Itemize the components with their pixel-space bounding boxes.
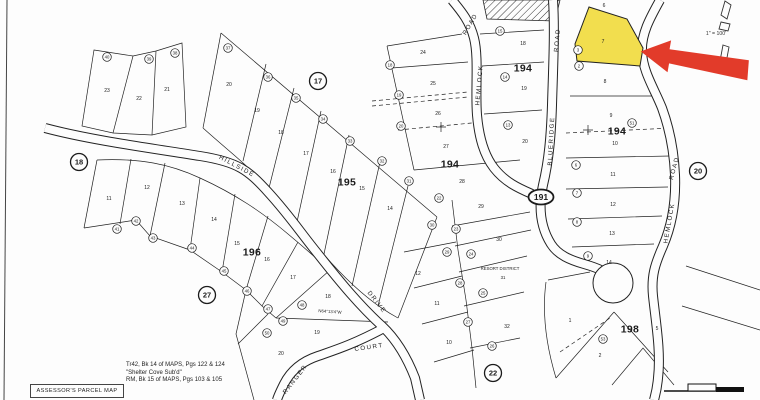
- resort-district-lot: 31: [501, 275, 506, 280]
- svg-text:34: 34: [321, 117, 326, 122]
- svg-text:35: 35: [294, 96, 299, 101]
- lot-number: 29: [478, 204, 484, 210]
- lot-number: 16: [264, 257, 270, 263]
- lot-number: 14: [387, 206, 393, 212]
- lot-number: 6: [603, 3, 606, 9]
- parcel-circle-number: 50: [263, 329, 272, 338]
- parcel-circle-number: 38: [171, 49, 180, 58]
- lot-number: 18: [520, 41, 526, 47]
- lot-number: 11: [106, 196, 111, 202]
- adjacent-page-circle: 17: [310, 73, 327, 90]
- parcel-circle-number: 53: [599, 335, 608, 344]
- lot-number: 20: [522, 139, 528, 145]
- svg-text:32: 32: [380, 159, 385, 164]
- parcel-circle-number: 36: [264, 73, 273, 82]
- svg-text:26: 26: [490, 344, 495, 349]
- note-line: RM, Bk 15 of MAPS, Pgs 103 & 105: [126, 377, 225, 385]
- parcel-circle-number: 18: [386, 61, 395, 70]
- block-number: 194: [441, 159, 459, 171]
- svg-text:33: 33: [348, 139, 353, 144]
- svg-text:18: 18: [388, 63, 393, 68]
- pointer-arrow-icon: [638, 36, 752, 87]
- parcel-circle-number: 40: [103, 53, 112, 62]
- lot-number: 20: [226, 82, 232, 88]
- parcel-circle-number: 29: [443, 248, 452, 257]
- lot-number: 20: [278, 351, 284, 357]
- lot-number: 12: [610, 202, 616, 208]
- parcel-circle-number: 51: [628, 119, 637, 128]
- parcel-circle-number: 39: [145, 55, 154, 64]
- lot-number: 15: [359, 186, 365, 192]
- highlighted-parcel: [575, 7, 643, 66]
- road-label: ROAD: [553, 28, 562, 52]
- lot-number: 10: [612, 141, 618, 147]
- parcel-circle-number: 37: [224, 44, 233, 53]
- lot-number: 27: [443, 144, 449, 150]
- svg-text:29: 29: [445, 250, 450, 255]
- block-number: 194: [608, 126, 626, 138]
- parcel-circle-number: 41: [113, 225, 122, 234]
- lot-number: 17: [290, 275, 296, 281]
- highway-shield-191: 191: [529, 190, 554, 205]
- lot-number: 19: [521, 86, 527, 92]
- lot-number: 5: [656, 326, 659, 332]
- parcel-circle-number: 48: [298, 301, 307, 310]
- svg-text:43: 43: [151, 236, 156, 241]
- lot-number: 18: [325, 294, 331, 300]
- parcel-circle-number: 25: [479, 289, 488, 298]
- svg-text:36: 36: [266, 75, 271, 80]
- lot-number: 23: [104, 88, 110, 94]
- lot-number: 9: [610, 113, 613, 119]
- svg-text:19: 19: [397, 93, 402, 98]
- parcel-circle-number: 28: [456, 279, 465, 288]
- lot-number: 13: [179, 201, 185, 207]
- svg-text:24: 24: [469, 252, 474, 257]
- svg-text:17: 17: [314, 77, 322, 86]
- svg-text:31: 31: [407, 179, 412, 184]
- parcel-circle-number: 3: [574, 46, 583, 55]
- map-canvas: 2322212019181716151411121314151617181920…: [0, 0, 760, 400]
- adjacent-page-circle: 20: [690, 163, 707, 180]
- scale-bar: [664, 384, 744, 392]
- svg-text:53: 53: [601, 337, 606, 342]
- scale-label: 1" = 100': [692, 31, 740, 37]
- adjacent-page-circle: 18: [71, 154, 88, 171]
- lot-number: 11: [434, 301, 439, 307]
- lot-number: 8: [604, 79, 607, 85]
- svg-text:20: 20: [694, 167, 702, 176]
- block-number: 198: [621, 324, 639, 336]
- block-number: 196: [243, 247, 261, 259]
- assessor-parcel-map: 2322212019181716151411121314151617181920…: [0, 0, 760, 400]
- svg-text:44: 44: [190, 246, 195, 251]
- svg-text:22: 22: [489, 369, 497, 378]
- lot-number: 21: [164, 87, 170, 93]
- svg-text:38: 38: [173, 51, 178, 56]
- lot-number: 24: [420, 50, 426, 56]
- lot-number: 12: [415, 271, 421, 277]
- lot-number: 28: [459, 179, 465, 185]
- svg-text:51: 51: [630, 121, 635, 126]
- note-line: Tr42, Bk 14 of MAPS, Pgs 122 & 124: [126, 362, 225, 370]
- block-number: 194: [514, 63, 532, 75]
- block-number: 195: [338, 177, 356, 189]
- svg-text:42: 42: [134, 219, 139, 224]
- svg-text:14: 14: [503, 75, 508, 80]
- svg-text:46: 46: [245, 289, 250, 294]
- road-label: BLUERIDGE: [547, 116, 557, 166]
- parcel-circle-number: 15: [496, 27, 505, 36]
- svg-text:23: 23: [454, 227, 459, 232]
- svg-text:28: 28: [458, 281, 463, 286]
- parcel-circle-number: 6: [572, 161, 581, 170]
- lot-number: 19: [314, 330, 320, 336]
- svg-text:27: 27: [203, 291, 211, 300]
- parcel-circle-number: 47: [264, 305, 273, 314]
- lot-number: 22: [136, 96, 142, 102]
- lot-number: 26: [435, 111, 441, 117]
- lot-number: 17: [303, 151, 309, 157]
- svg-text:27: 27: [466, 320, 471, 325]
- svg-text:15: 15: [498, 29, 503, 34]
- lot-number: 32: [504, 324, 510, 330]
- lot-number: 19: [254, 108, 260, 114]
- svg-text:50: 50: [265, 331, 270, 336]
- parcel-circle-number: 14: [501, 73, 510, 82]
- lot-number: 11: [610, 172, 615, 178]
- parcel-circle-number: 34: [319, 115, 328, 124]
- svg-text:40: 40: [105, 55, 110, 60]
- svg-text:20: 20: [399, 124, 404, 129]
- parcel-lines-dashed: [372, 92, 672, 352]
- lot-number: 1: [569, 318, 572, 324]
- parcel-circle-number: 46: [243, 287, 252, 296]
- adjacent-page-circle: 22: [485, 365, 502, 382]
- svg-text:25: 25: [481, 291, 486, 296]
- parcel-circle-number: 13: [504, 121, 513, 130]
- map-border-line: [4, 0, 7, 400]
- lot-number: 14: [606, 260, 612, 266]
- lot-number: 15: [234, 241, 240, 247]
- map-notes: Tr42, Bk 14 of MAPS, Pgs 122 & 124 "Shel…: [126, 362, 225, 385]
- lot-number: 2: [599, 353, 602, 359]
- lot-number: 7: [602, 39, 605, 45]
- parcel-circle-number: 8: [573, 218, 582, 227]
- parcel-circle-number: 43: [149, 234, 158, 243]
- parcel-circle-number: 33: [346, 137, 355, 146]
- lot-number: 12: [144, 185, 150, 191]
- svg-text:22: 22: [437, 196, 442, 201]
- svg-text:39: 39: [147, 57, 152, 62]
- svg-text:41: 41: [115, 227, 120, 232]
- hillside-drive-casing: [45, 128, 420, 400]
- svg-text:47: 47: [266, 307, 271, 312]
- parcel-circle-number: 49: [279, 317, 288, 326]
- parcel-circle-number: 45: [220, 267, 229, 276]
- parcel-circle-number: 23: [452, 225, 461, 234]
- cul-de-sac-bulb: [593, 263, 633, 303]
- parcel-circle-number: 44: [188, 244, 197, 253]
- map-title-box: ASSESSOR'S PARCEL MAP: [30, 384, 124, 398]
- parcel-circle-number: 22: [435, 194, 444, 203]
- lot-number: 30: [496, 237, 502, 243]
- lot-number: 16: [330, 169, 336, 175]
- resort-district-label: RESORT DISTRICT: [481, 266, 520, 271]
- svg-text:45: 45: [222, 269, 227, 274]
- lot-number: 14: [211, 217, 217, 223]
- lot-number: 10: [446, 340, 452, 346]
- svg-text:191: 191: [534, 192, 548, 202]
- svg-text:30: 30: [430, 223, 435, 228]
- parcel-circle-number: 35: [292, 94, 301, 103]
- parcel-circle-number: 30: [428, 221, 437, 230]
- note-line: "Shelter Cove Sub'd": [126, 370, 225, 378]
- svg-text:49: 49: [281, 319, 286, 324]
- bearing-label: N64°13'4"W: [318, 308, 342, 315]
- svg-text:48: 48: [300, 303, 305, 308]
- parcel-circle-number: 31: [405, 177, 414, 186]
- parcel-circle-number: 27: [464, 318, 473, 327]
- lot-number: 25: [430, 81, 436, 87]
- parcel-circle-number: 24: [467, 250, 476, 259]
- parcel-circle-number: 2: [575, 62, 584, 71]
- parcel-circle-number: 32: [378, 157, 387, 166]
- ranger-court-surface: [277, 328, 384, 400]
- parcel-circle-number: 19: [395, 91, 404, 100]
- parcel-circle-number: 7: [573, 189, 582, 198]
- svg-text:18: 18: [75, 158, 83, 167]
- svg-text:37: 37: [226, 46, 231, 51]
- parcel-circle-number: 20: [397, 122, 406, 131]
- parcel-circle-number: 26: [488, 342, 497, 351]
- lot-number: 18: [278, 130, 284, 136]
- parcel-circle-number: 9: [584, 252, 593, 261]
- adjacent-page-circle: 27: [199, 287, 216, 304]
- parcel-circle-number: 42: [132, 217, 141, 226]
- svg-text:13: 13: [506, 123, 511, 128]
- lot-number: 13: [609, 231, 615, 237]
